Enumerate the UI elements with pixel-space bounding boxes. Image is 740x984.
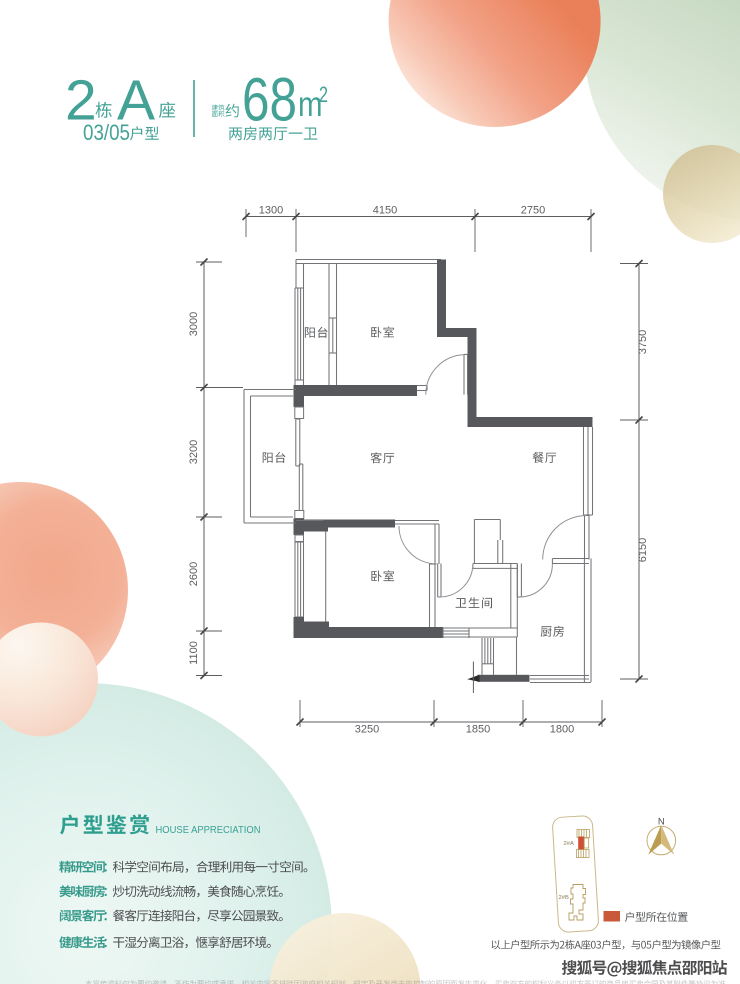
svg-text:3200: 3200 xyxy=(188,440,200,464)
svg-text:4150: 4150 xyxy=(373,205,397,217)
svg-text:2#A: 2#A xyxy=(564,841,574,847)
svg-text:2: 2 xyxy=(319,82,328,107)
svg-text:1300: 1300 xyxy=(259,205,283,217)
svg-text:3000: 3000 xyxy=(188,312,200,336)
svg-text:1850: 1850 xyxy=(466,724,490,736)
svg-text:2600: 2600 xyxy=(188,562,200,586)
svg-text:HOUSE APPRECIATION: HOUSE APPRECIATION xyxy=(156,825,261,836)
svg-text:6150: 6150 xyxy=(637,538,649,562)
svg-text:68: 68 xyxy=(242,66,297,134)
svg-text:1100: 1100 xyxy=(188,641,200,665)
svg-text:03/05: 03/05 xyxy=(83,120,130,145)
svg-text:3250: 3250 xyxy=(355,724,379,736)
svg-text:2#B: 2#B xyxy=(559,895,569,901)
svg-text:1800: 1800 xyxy=(550,724,574,736)
svg-text:3750: 3750 xyxy=(637,330,649,354)
svg-text:2750: 2750 xyxy=(521,205,545,217)
